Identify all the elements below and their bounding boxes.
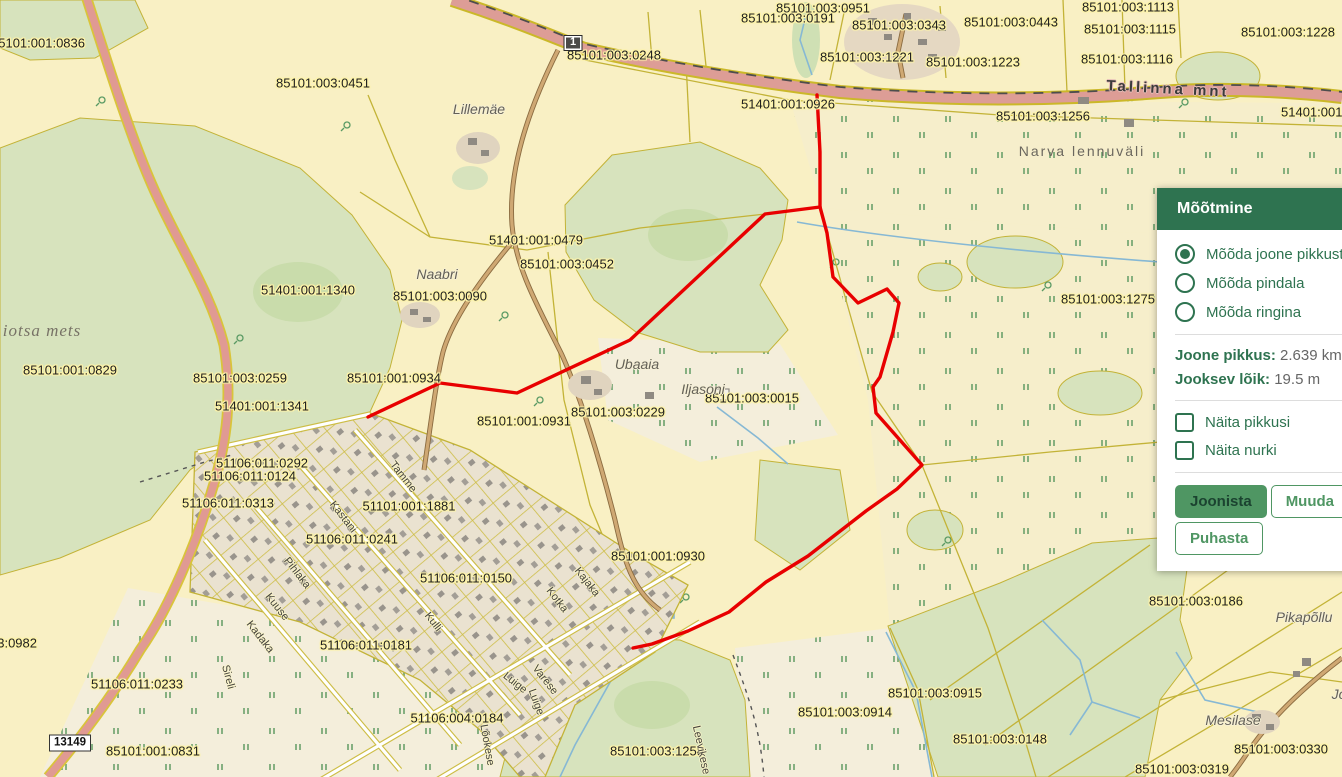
map-application: 85101:001:083685101:003:095185101:003:01… [0, 0, 1342, 777]
stat-row-1: Jooksev lõik: 19.5 m [1175, 371, 1342, 388]
radio-icon[interactable] [1175, 302, 1195, 322]
checkbox-label: Näita nurki [1205, 442, 1277, 459]
radio-label: Mõõda joone pikkust [1206, 246, 1342, 263]
radio-label: Mõõda pindala [1206, 275, 1304, 292]
checkbox-group: Näita pikkusiNäita nurki [1175, 413, 1342, 460]
radio-option-0[interactable]: Mõõda joone pikkust [1175, 244, 1342, 264]
radio-icon[interactable] [1175, 273, 1195, 293]
stat-label: Joone pikkus: [1175, 347, 1276, 364]
muuda-button[interactable]: Muuda [1271, 485, 1342, 518]
stat-value: 2.639 km [1276, 347, 1342, 364]
stat-label: Jooksev lõik: [1175, 371, 1270, 388]
joonista-button[interactable]: Joonista [1175, 485, 1267, 518]
radio-label: Mõõda ringina [1206, 304, 1301, 321]
puhasta-button[interactable]: Puhasta [1175, 522, 1263, 555]
radio-option-2[interactable]: Mõõda ringina [1175, 302, 1342, 322]
radio-option-1[interactable]: Mõõda pindala [1175, 273, 1342, 293]
measurement-panel: Mõõtmine Mõõda joone pikkustMõõda pindal… [1157, 188, 1342, 571]
measurement-results: Joone pikkus: 2.639 kmJooksev lõik: 19.5… [1175, 347, 1342, 388]
stat-row-0: Joone pikkus: 2.639 km [1175, 347, 1342, 364]
divider [1175, 400, 1342, 401]
map-canvas[interactable] [0, 0, 1342, 777]
radio-icon[interactable] [1175, 244, 1195, 264]
radio-group: Mõõda joone pikkustMõõda pindalaMõõda ri… [1175, 244, 1342, 322]
stat-value: 19.5 m [1270, 371, 1320, 388]
checkbox-option-1[interactable]: Näita nurki [1175, 441, 1342, 460]
divider [1175, 334, 1342, 335]
checkbox-option-0[interactable]: Näita pikkusi [1175, 413, 1342, 432]
checkbox-icon[interactable] [1175, 413, 1194, 432]
panel-header: Mõõtmine [1157, 188, 1342, 230]
panel-body: Mõõda joone pikkustMõõda pindalaMõõda ri… [1157, 230, 1342, 571]
button-row: JoonistaMuudaPuhasta [1175, 485, 1342, 555]
divider [1175, 472, 1342, 473]
checkbox-label: Näita pikkusi [1205, 414, 1290, 431]
checkbox-icon[interactable] [1175, 441, 1194, 460]
panel-title: Mõõtmine [1177, 200, 1253, 217]
